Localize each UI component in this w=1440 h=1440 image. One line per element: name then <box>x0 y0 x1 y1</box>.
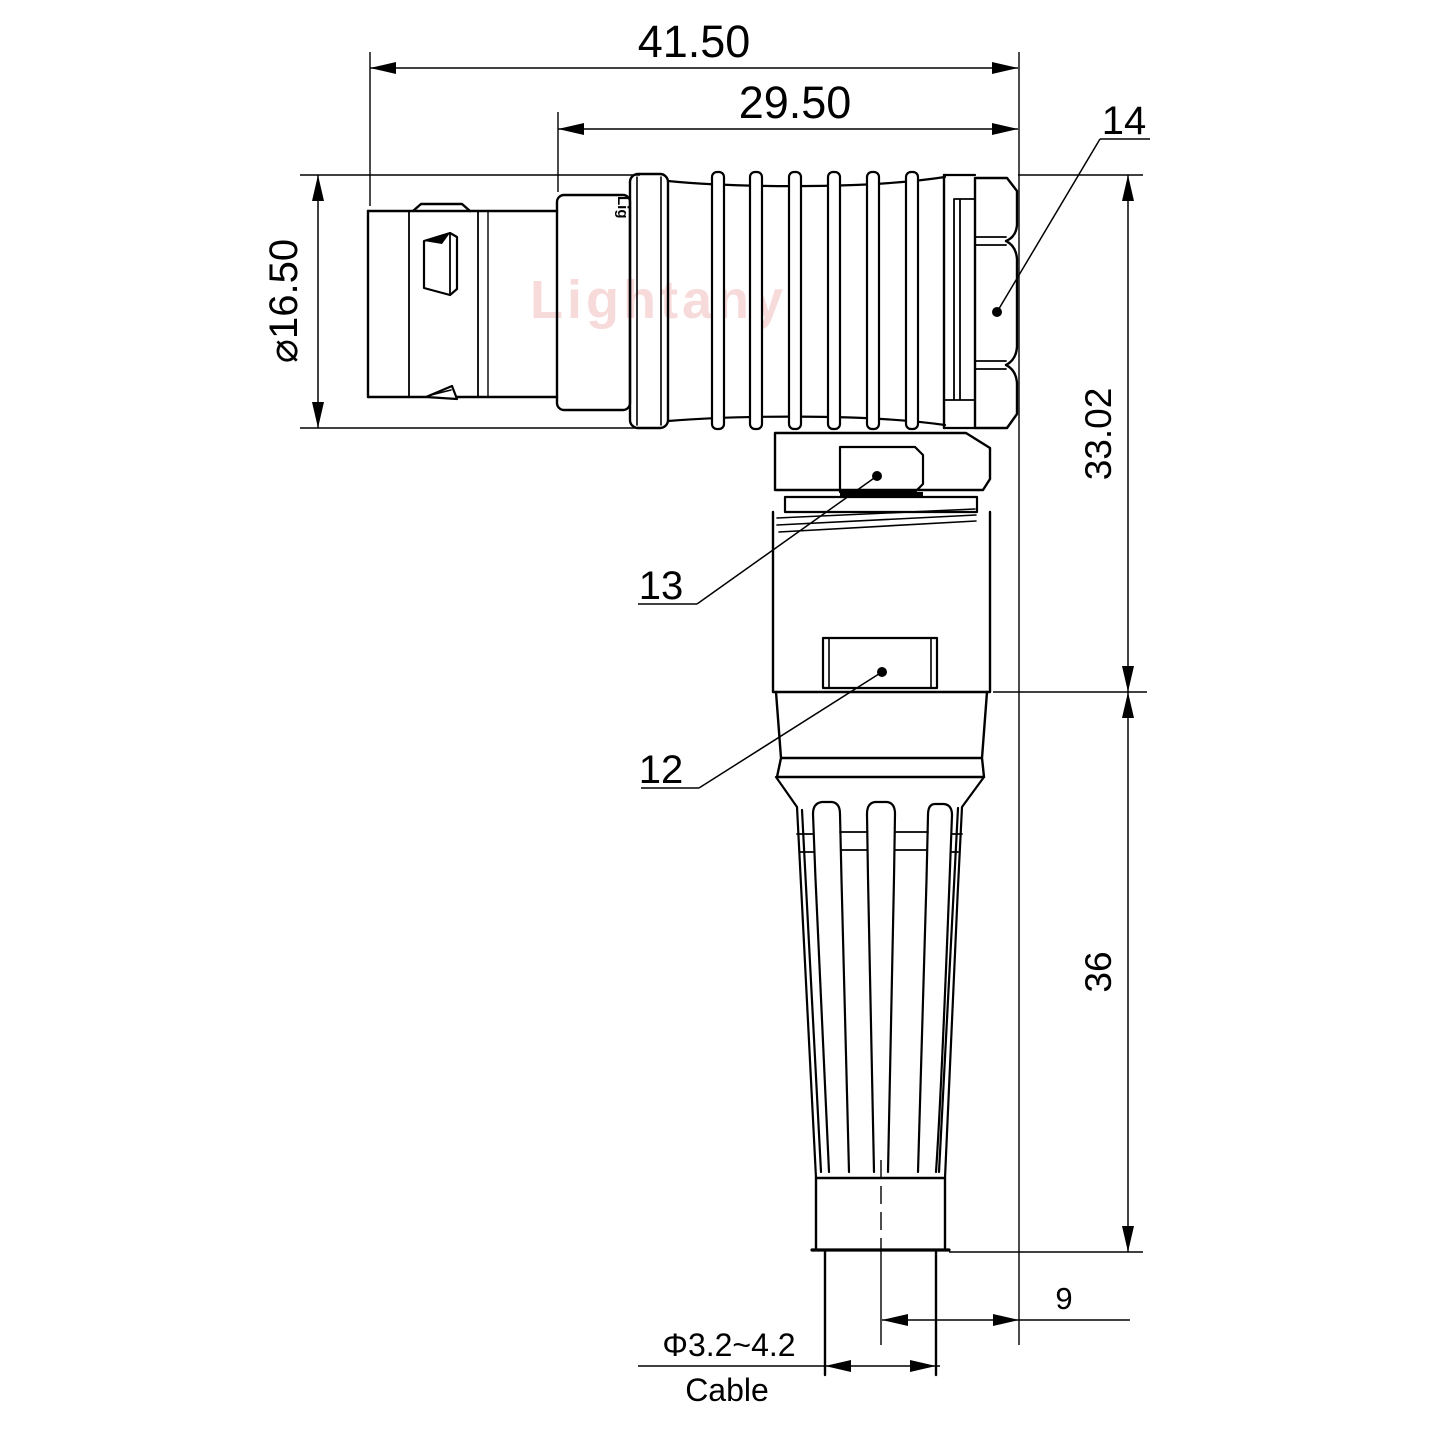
dimension-elbow-height: 33.02 <box>1078 175 1134 692</box>
dim-front-diameter-label: ⌀16.50 <box>262 239 306 363</box>
body-neck <box>776 692 987 777</box>
elbow-body <box>773 433 990 777</box>
dim-overall-length-label: 41.50 <box>638 16 751 67</box>
dim-coupling-length-label: 29.50 <box>739 77 852 128</box>
thread-ring <box>777 497 977 532</box>
watermark-text: Lightany <box>530 270 787 330</box>
dimension-front-diameter: ⌀16.50 <box>262 175 324 428</box>
connector-drawing-canvas: Lightany Lig <box>0 0 1440 1440</box>
callout-body: 12 <box>639 667 887 792</box>
dimension-coupling-length: 29.50 <box>558 77 1018 135</box>
hex-nut <box>975 178 1017 428</box>
dimension-cable-diameter: Φ3.2~4.2 Cable <box>638 1327 940 1408</box>
cable-label: Cable <box>685 1372 769 1408</box>
callout-body-label: 12 <box>639 748 684 792</box>
dimension-cable-offset: 9 <box>882 1281 1130 1326</box>
callout-hex-nut-label: 14 <box>1102 99 1147 143</box>
dim-boot-length-label: 36 <box>1078 951 1119 992</box>
dim-cable-offset-label: 9 <box>1055 1281 1072 1316</box>
dim-elbow-height-label: 33.02 <box>1078 388 1119 481</box>
back-nut <box>775 433 990 497</box>
vertical-body <box>773 512 990 692</box>
strain-relief-boot <box>776 777 984 1375</box>
dimension-overall-length: 41.50 <box>370 16 1018 74</box>
dimension-boot-length: 36 <box>1078 692 1134 1252</box>
technical-drawing-page: Lightany Lig <box>0 0 1440 1440</box>
callout-back-nut-label: 13 <box>639 564 684 608</box>
sleeve-brand-mark: Lig <box>614 196 631 219</box>
plug-nose <box>368 204 557 399</box>
dim-cable-diameter-label: Φ3.2~4.2 <box>662 1327 795 1363</box>
washer-ring <box>944 175 975 428</box>
